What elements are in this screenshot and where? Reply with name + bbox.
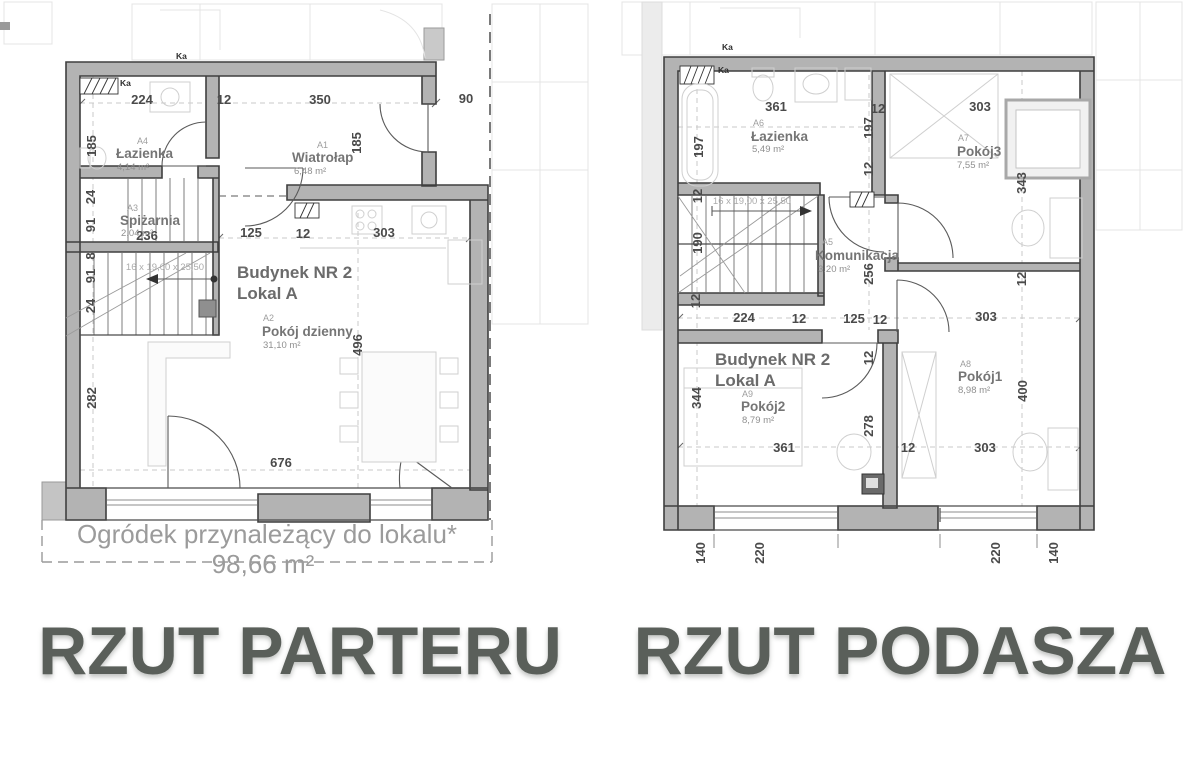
room-code: A7 [958,133,969,143]
dim-label: 224 [733,310,755,325]
dim-label: 91 [83,218,98,232]
dim-label: 343 [1014,172,1029,194]
dim-label: 140 [693,542,708,564]
room1-door-arc [897,280,949,332]
room-name: Łazienka [116,146,174,161]
dim-label: 90 [459,91,473,106]
room-code: A1 [317,140,328,150]
room-area: 3,20 m² [818,264,850,275]
dim-label: 197 [861,117,876,139]
room-name: Komunikacja [815,248,900,263]
dim-label: 12 [296,226,310,241]
room3-door-arc [898,203,953,258]
roof-window [1006,100,1090,178]
room-name: Spiżarnia [120,213,181,228]
dim-label: 8 [83,252,98,259]
dim-label: 12 [792,311,806,326]
chair [1013,433,1047,471]
washbasin [795,68,837,102]
room-name: Wiatrołap [292,150,353,165]
floor-plan-page: Ka Ka 224 12 350 90 185 24 91 8 91 24 28… [0,0,1200,757]
dim-label: 12 [873,312,887,327]
room-name: Pokój3 [957,144,1002,159]
kitchen-sink [412,206,446,234]
dim-label: 224 [131,92,153,107]
ka-label: Ka [176,51,187,61]
chair [1012,210,1044,246]
stair-direction-arrow [800,206,812,216]
dining-table [362,352,436,462]
dim-label: 24 [83,298,98,313]
terrace-door-arc [168,416,240,488]
dim-label: 303 [969,99,991,114]
dim-label: 220 [752,542,767,564]
room-code: A5 [822,237,833,247]
dim-label: 125 [843,311,865,326]
room-name: Pokój1 [958,369,1003,384]
dim-label: 12 [217,92,231,107]
dim-label: 140 [1046,542,1061,564]
room-area: 5,49 m² [752,144,784,155]
room-code: A2 [263,313,274,323]
stair-direction-arrow [146,274,158,284]
room-code: A3 [127,203,138,213]
attic-floor-title: RZUT PODASZA [600,612,1200,690]
building-label: Budynek NR 2 [715,350,830,369]
entrance-door-arc [380,104,428,152]
desk [1048,428,1078,490]
dim-label: 197 [691,136,706,158]
room-area: 8,79 m² [742,415,774,426]
wardrobe-room1 [902,352,936,478]
room-area: 8,98 m² [958,385,990,396]
dim-label: 361 [773,440,795,455]
washer-hatch-box [680,66,714,84]
dim-label: 91 [83,269,98,283]
room-area: 31,10 m² [263,340,301,351]
ka-label: Ka [722,42,733,52]
chimney [862,474,884,494]
dim-label: 303 [974,440,996,455]
building-label: Budynek NR 2 [237,263,352,282]
room-code: A8 [960,359,971,369]
dim-label: 12 [861,162,876,176]
washbasin [150,82,190,112]
hatch-box-small [850,192,874,207]
dim-label: 361 [765,99,787,114]
sofa [148,342,230,466]
dim-label: 350 [309,92,331,107]
dim-label: 185 [84,135,99,157]
dim-label: 676 [270,455,292,470]
room-name: Łazienka [751,129,809,144]
dim-label: 190 [690,232,705,254]
dim-label: 125 [240,225,262,240]
dim-label: 12 [901,440,915,455]
room-code: A6 [753,118,764,128]
unit-label: Lokal A [715,371,776,390]
room-name: Pokój dzienny [262,324,353,339]
dim-label: 220 [988,542,1003,564]
dim-label: 400 [1015,380,1030,402]
dim-label: 282 [84,387,99,409]
dim-label: 24 [83,189,98,204]
ka-label: Ka [718,65,729,75]
garden-label: Ogródek przynależący do lokalu* [77,519,457,549]
dim-label: 12 [690,189,705,203]
room-area: 7,55 m² [957,160,989,171]
garden-area-label: 98,66 m² [212,549,315,579]
ground-floor-plan-drawing: Ka Ka 224 12 350 90 185 24 91 8 91 24 28… [0,0,600,600]
room-area: 4,14 m² [117,162,149,173]
washer-hatch-box [80,78,118,94]
dim-label: 344 [689,386,704,408]
stairs-label: 16 x 19,00 x 25,50 [713,196,791,207]
ka-label: Ka [120,78,131,88]
desk [1050,198,1082,258]
dim-label: 12 [861,351,876,365]
attic-floor-plan-drawing: Ka Ka 361 12 303 197 12 190 12 344 197 1… [600,0,1200,600]
room-code: A9 [742,389,753,399]
dim-label: 12 [688,294,703,308]
unit-label: Lokal A [237,284,298,303]
room-name: Pokój2 [741,399,785,414]
dim-label: 303 [373,225,395,240]
dim-label: 12 [1014,272,1029,286]
dim-label: 278 [861,415,876,437]
room-area: 2,04 m² [121,228,153,239]
chair [837,434,871,470]
stair-landing [199,300,216,317]
stairs-label: 16 x 19,00 x 25,50 [126,262,204,273]
dim-label: 303 [975,309,997,324]
dim-label: 12 [871,101,885,116]
room-code: A4 [137,136,148,146]
room-area: 6,48 m² [294,166,326,177]
ground-floor-title: RZUT PARTERU [0,612,600,690]
dim-label: 256 [861,263,876,285]
